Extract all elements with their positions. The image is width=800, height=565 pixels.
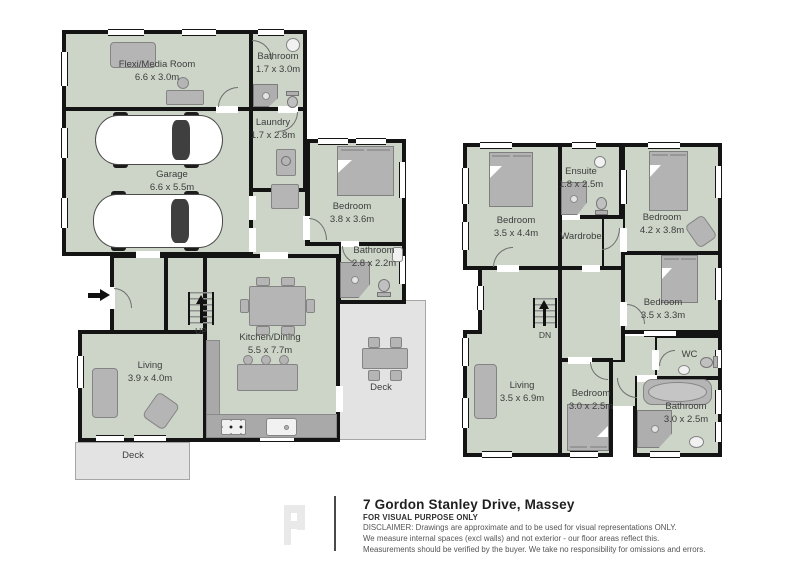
window (258, 29, 284, 36)
room-name: Laundry (243, 117, 303, 130)
outdoor-table-icon (362, 348, 408, 369)
entry-arrow-icon (88, 293, 100, 298)
toilet-icon (377, 292, 391, 297)
room-label-bathroom1: Bathroom 1.7 x 3.0m (248, 51, 308, 76)
purpose-note: FOR VISUAL PURPOSE ONLY (363, 513, 478, 522)
bed-icon (489, 152, 533, 207)
room-label-flexi: Flexi/Media Room 6.6 x 3.0m (97, 59, 217, 84)
window (318, 138, 348, 145)
toilet-icon (595, 210, 608, 215)
window (61, 198, 68, 228)
room-name: Bathroom (636, 401, 736, 414)
room-name: Bedroom (612, 212, 712, 225)
window (462, 168, 469, 204)
disclaimer-line-1: DISCLAIMER: Drawings are approximate and… (363, 523, 677, 532)
stairs-down-arrow-head (539, 300, 549, 309)
agency-logo-icon (284, 505, 305, 513)
washer-door-icon (281, 156, 291, 166)
window (462, 398, 469, 428)
window (650, 451, 680, 458)
toilet-icon (378, 279, 390, 292)
sink-icon (689, 436, 704, 448)
room-label-kitchen: Kitchen/Dining 5.5 x 7.7m (210, 332, 330, 357)
room-dims: 2.8 x 2.2m (324, 258, 424, 271)
disclaimer-line-3: Measurements should be verified by the b… (363, 545, 705, 554)
window (182, 29, 216, 36)
bed-icon (649, 151, 688, 211)
stove-icon (221, 419, 246, 435)
room-name: Bedroom (302, 201, 402, 214)
room-dims: 1.8 x 2.5m (546, 179, 616, 192)
outdoor-chair-icon (390, 370, 402, 381)
window (399, 162, 406, 198)
door-gap (260, 252, 288, 259)
door-gap (249, 228, 256, 252)
door-gap (136, 251, 160, 258)
dining-chair-icon (240, 299, 249, 313)
bed-icon (661, 255, 698, 303)
door-gap (336, 386, 343, 412)
kitchen-sink-icon (266, 418, 297, 436)
dining-chair-icon (281, 277, 295, 286)
window (96, 435, 124, 442)
door-gap (652, 350, 659, 370)
room-dims: 3.0 x 2.5m (541, 401, 641, 414)
window (715, 268, 722, 300)
window (477, 286, 484, 310)
stairs-up-arrow-head (196, 295, 206, 304)
toilet-icon (287, 96, 298, 108)
room-label-laundry: Laundry 1.7 x 2.8m (243, 117, 303, 142)
outdoor-chair-icon (390, 337, 402, 348)
room-dims: 3.0 x 2.5m (636, 414, 736, 427)
car-icon (93, 194, 223, 248)
room-dims: 6.6 x 5.5m (112, 182, 232, 195)
room-label-bedroom-u2: Bedroom 4.2 x 3.8m (612, 212, 712, 237)
outdoor-chair-icon (368, 337, 380, 348)
room-name: Bathroom (248, 51, 308, 64)
room-dims: 5.5 x 7.7m (210, 345, 330, 358)
room-dims: 4.2 x 3.8m (612, 225, 712, 238)
door-gap (216, 106, 238, 113)
door-gap (568, 357, 592, 364)
window (648, 142, 680, 149)
room-name: Flexi/Media Room (97, 59, 217, 72)
window (572, 142, 596, 149)
property-address-title: 7 Gordon Stanley Drive, Massey (363, 497, 575, 512)
desk-icon (166, 90, 204, 105)
window (61, 128, 68, 158)
room-dims: 1.7 x 3.0m (248, 64, 308, 77)
bathtub-basin-icon (648, 382, 707, 402)
room-label-wc: WC (662, 349, 717, 362)
window (134, 435, 166, 442)
room-label-bathroom2: Bathroom 2.8 x 2.2m (324, 245, 424, 270)
outdoor-chair-icon (368, 370, 380, 381)
agency-logo-icon (291, 521, 298, 529)
room-name: Kitchen/Dining (210, 332, 330, 345)
faucet-icon (284, 425, 289, 430)
dining-chair-icon (306, 299, 315, 313)
room-name: Bedroom (466, 215, 566, 228)
window (482, 451, 512, 458)
room-name: Bathroom (324, 245, 424, 258)
room-dims: 1.7 x 2.8m (243, 130, 303, 143)
window (715, 166, 722, 198)
entry-arrow-icon (100, 289, 110, 301)
room-label-wardrobe: Wardrobe (541, 231, 621, 244)
room-label-garage: Garage 6.6 x 5.5m (112, 169, 232, 194)
dining-table-icon (249, 286, 306, 326)
disclaimer-line-2: We measure internal spaces (excl walls) … (363, 534, 659, 543)
room-name: Ensuite (546, 166, 616, 179)
room-dims: 3.8 x 3.6m (302, 214, 402, 227)
room-dims: 3.5 x 3.3m (613, 310, 713, 323)
room-dims: 3.9 x 4.0m (100, 373, 200, 386)
room-name: Garage (112, 169, 232, 182)
deck-rear-label: Deck (351, 382, 411, 395)
dining-chair-icon (256, 277, 270, 286)
door-gap (582, 265, 600, 272)
car-icon (95, 115, 223, 165)
agency-logo-icon (297, 513, 305, 530)
window (77, 356, 84, 388)
room-name: Bedroom (613, 297, 713, 310)
room-label-living-gf: Living 3.9 x 4.0m (100, 360, 200, 385)
window (480, 142, 512, 149)
room-name: Living (100, 360, 200, 373)
room-label-ensuite: Ensuite 1.8 x 2.5m (546, 166, 616, 191)
room-dims: 6.6 x 3.0m (97, 72, 217, 85)
toilet-icon (596, 197, 607, 210)
stairs-down-label: DN (531, 330, 559, 340)
room-label-bedroom-gf: Bedroom 3.8 x 3.6m (302, 201, 402, 226)
footer-divider (334, 496, 336, 551)
deck-front-label: Deck (103, 450, 163, 463)
window (108, 29, 144, 36)
bed-icon (337, 146, 394, 196)
room-label-bathroom-upper: Bathroom 3.0 x 2.5m (636, 401, 736, 426)
room-name: Bedroom (541, 388, 641, 401)
sink-icon (286, 38, 300, 52)
laundry-bench-icon (271, 184, 299, 209)
room-label-bedroom-u4: Bedroom 3.0 x 2.5m (541, 388, 641, 413)
stairs-down-arrow (543, 307, 546, 326)
sink-icon (678, 365, 690, 375)
window (61, 52, 68, 86)
room-label-bedroom-u3: Bedroom 3.5 x 3.3m (613, 297, 713, 322)
kitchen-island-icon (237, 364, 298, 391)
window (570, 451, 598, 458)
deck-rear (336, 300, 426, 440)
window (462, 338, 469, 366)
window (356, 138, 386, 145)
floorplan-canvas: UP Flexi/Media Room 6.6 x 3.0m Bathroom … (0, 0, 800, 565)
window (620, 170, 627, 204)
door-gap (249, 196, 256, 220)
stairs-up-arrow (200, 302, 203, 323)
window (644, 330, 676, 337)
